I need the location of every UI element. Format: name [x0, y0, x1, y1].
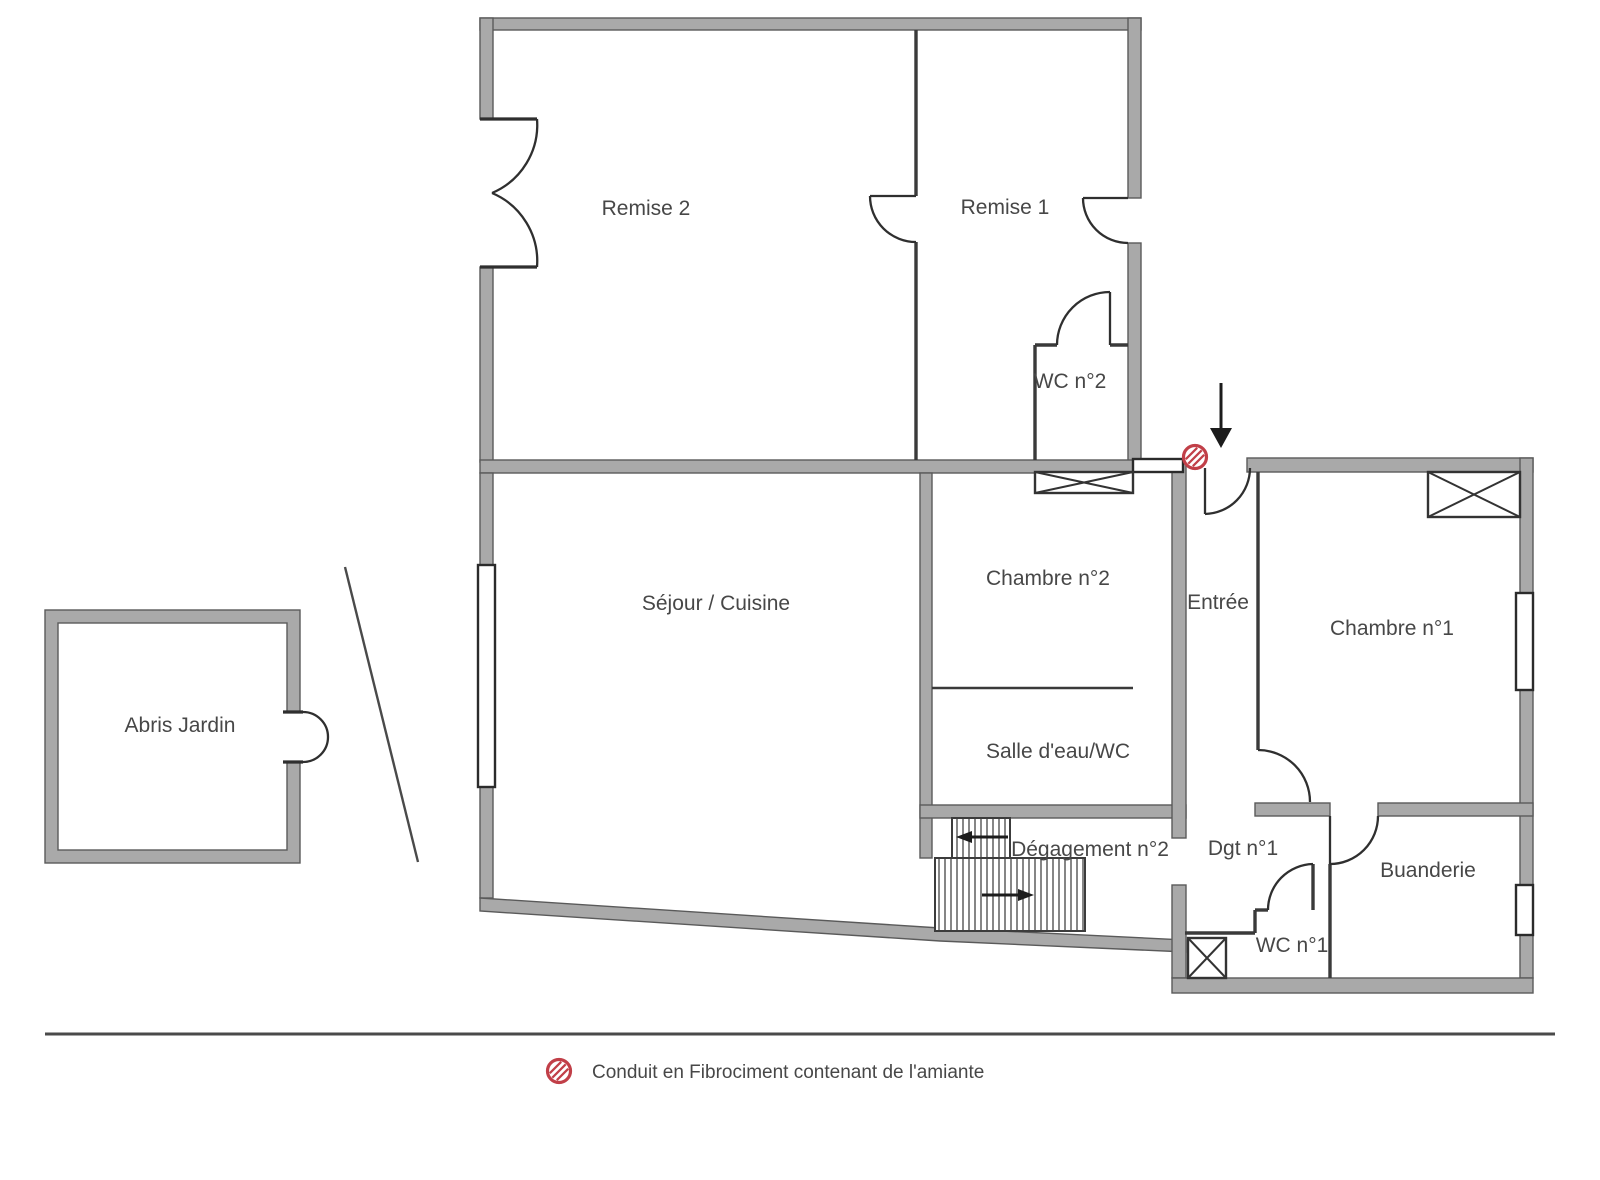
entrance-arrow-icon	[1210, 383, 1232, 448]
room-label-salle-eau: Salle d'eau/WC	[986, 740, 1130, 763]
remise-1-door-icon	[1083, 198, 1128, 243]
entrance-lintel-icon	[1133, 459, 1183, 472]
buanderie-door-icon	[1330, 816, 1378, 864]
asbestos-conduit-legend-icon	[548, 1060, 571, 1083]
room-label-sejour: Séjour / Cuisine	[642, 592, 790, 615]
remise-2-double-door-icon	[480, 119, 537, 267]
floor-plan-drawing: Remise 2 Remise 1 WC n°2 Séjour / Cuisin…	[0, 0, 1600, 1180]
room-labels: Remise 2 Remise 1 WC n°2 Séjour / Cuisin…	[125, 196, 1476, 957]
remise-divider-door-icon	[870, 196, 916, 242]
room-label-buanderie: Buanderie	[1380, 859, 1476, 882]
asbestos-conduit-icon	[1184, 446, 1207, 469]
room-label-dgt-1: Dgt n°1	[1208, 837, 1278, 860]
wc-2-door-icon	[1057, 292, 1110, 345]
boundary-diagonal-line	[345, 567, 418, 862]
legend-asbestos-text: Conduit en Fibrociment contenant de l'am…	[592, 1062, 984, 1083]
floor-plan-page: Remise 2 Remise 1 WC n°2 Séjour / Cuisin…	[0, 0, 1600, 1180]
chambre-1-door-icon	[1258, 750, 1310, 802]
buanderie-window-icon	[1516, 885, 1533, 935]
sejour-window-icon	[478, 565, 495, 787]
chambre-1-crossed-box-icon	[1428, 472, 1520, 517]
crossed-box-symbols	[1035, 472, 1520, 978]
room-label-degagement-2: Dégagement n°2	[1011, 838, 1169, 861]
room-label-remise-1: Remise 1	[961, 196, 1050, 219]
legend: Conduit en Fibrociment contenant de l'am…	[45, 1034, 1555, 1083]
room-label-wc-2: WC n°2	[1034, 370, 1107, 393]
room-label-wc-1: WC n°1	[1256, 934, 1329, 957]
wc-1-door-icon	[1268, 864, 1313, 910]
room-label-entree: Entrée	[1187, 591, 1249, 614]
room-label-remise-2: Remise 2	[602, 197, 691, 220]
entrance-door-icon	[1205, 468, 1250, 514]
wc-1-crossed-box-icon	[1188, 938, 1226, 978]
room-label-chambre-2: Chambre n°2	[986, 567, 1110, 590]
stairs	[935, 818, 1085, 931]
wc-2-crossed-box-icon	[1035, 472, 1133, 493]
room-label-abris-jardin: Abris Jardin	[125, 714, 236, 737]
room-label-chambre-1: Chambre n°1	[1330, 617, 1454, 640]
chambre-1-window-icon	[1516, 593, 1533, 690]
